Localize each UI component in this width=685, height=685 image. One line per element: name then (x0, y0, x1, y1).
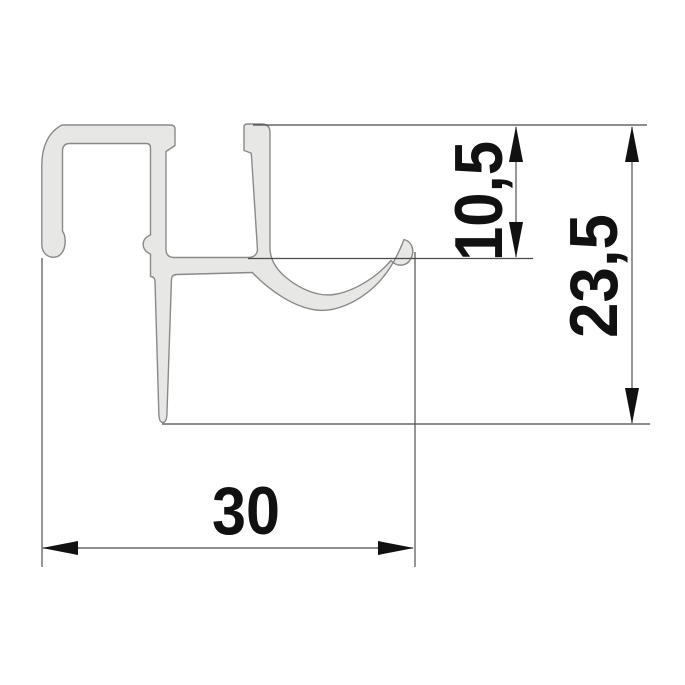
drawing-background (0, 0, 685, 685)
dimension-upper-height: 10,5 (441, 126, 523, 261)
profile-dimension-drawing: 10,5 23,5 30 (0, 0, 685, 685)
dimension-label-total-height: 23,5 (556, 214, 632, 338)
dimension-label-width: 30 (212, 473, 280, 549)
dimension-label-upper-height: 10,5 (441, 141, 517, 261)
technical-drawing-canvas: 10,5 23,5 30 (0, 0, 685, 685)
